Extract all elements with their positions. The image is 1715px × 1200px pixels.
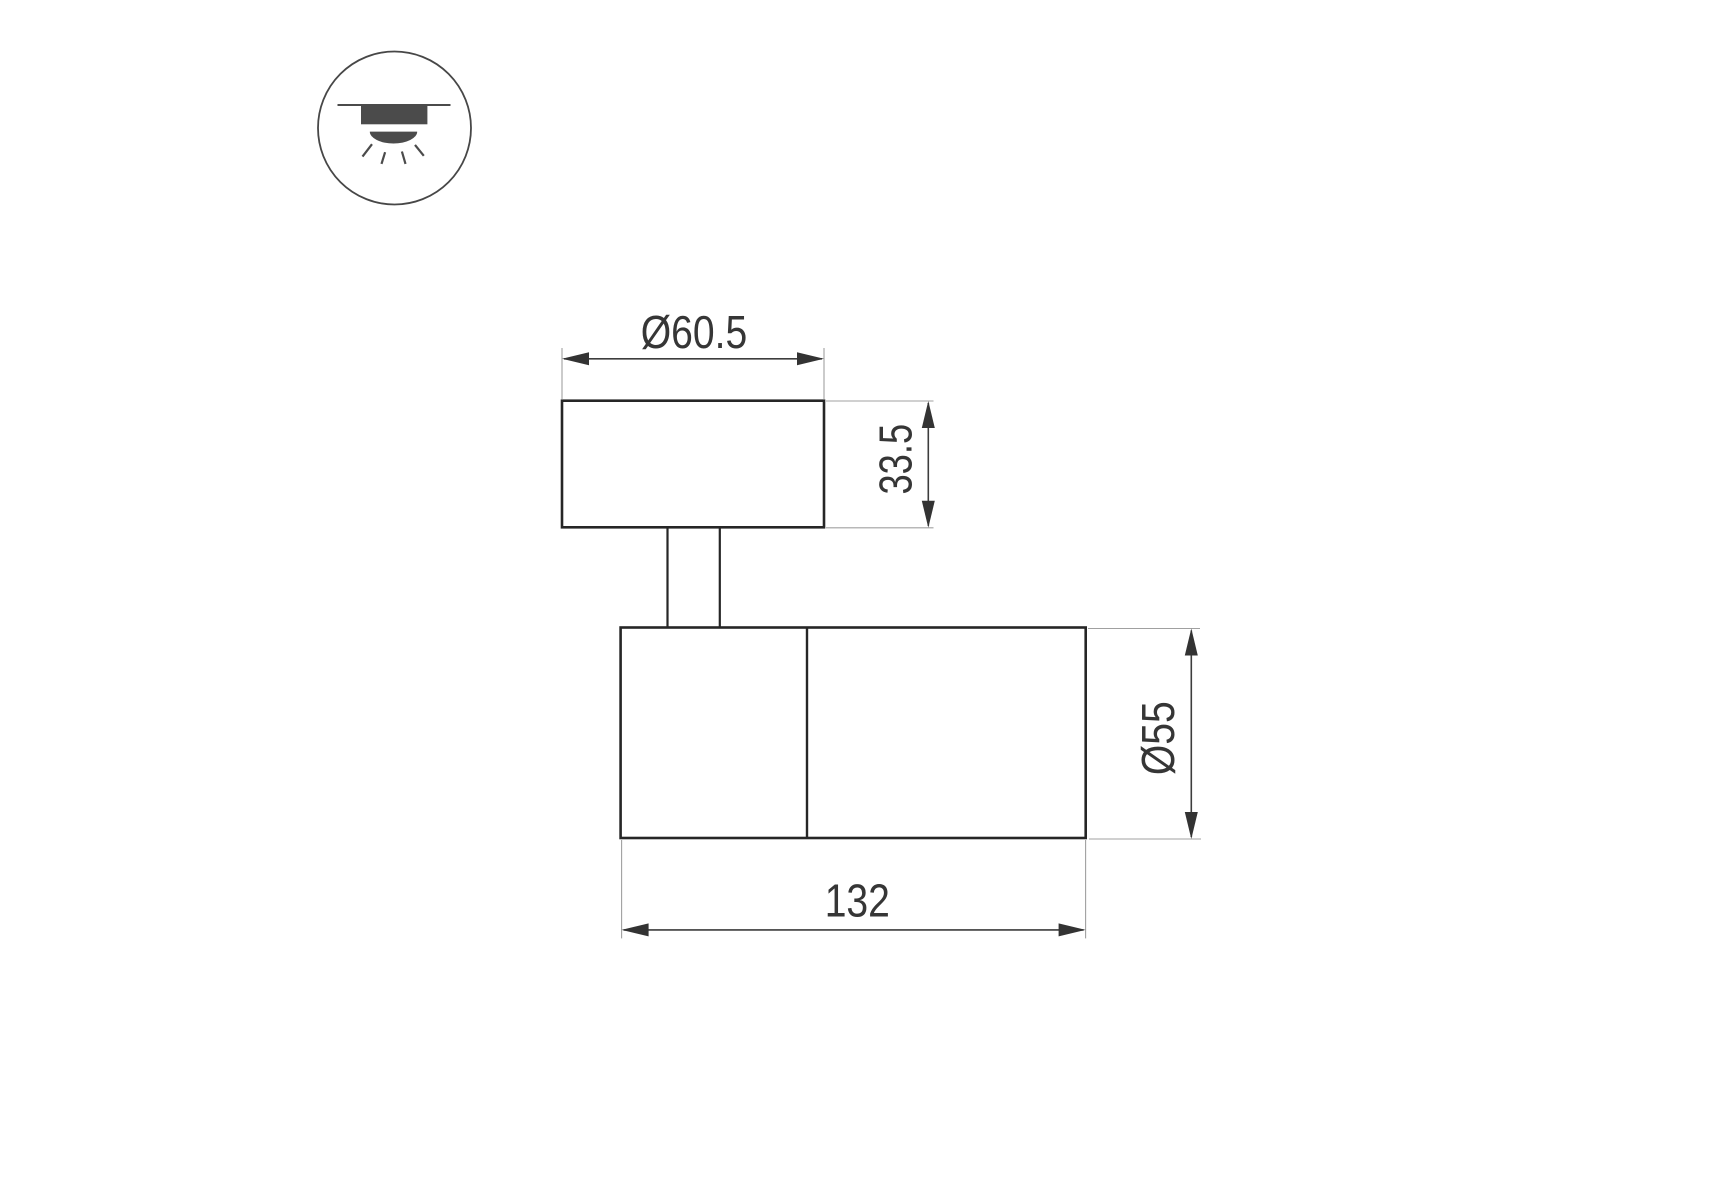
- svg-text:33.5: 33.5: [869, 424, 921, 495]
- svg-text:Ø55: Ø55: [1133, 701, 1185, 775]
- svg-text:132: 132: [825, 875, 890, 927]
- svg-text:Ø60.5: Ø60.5: [641, 307, 747, 359]
